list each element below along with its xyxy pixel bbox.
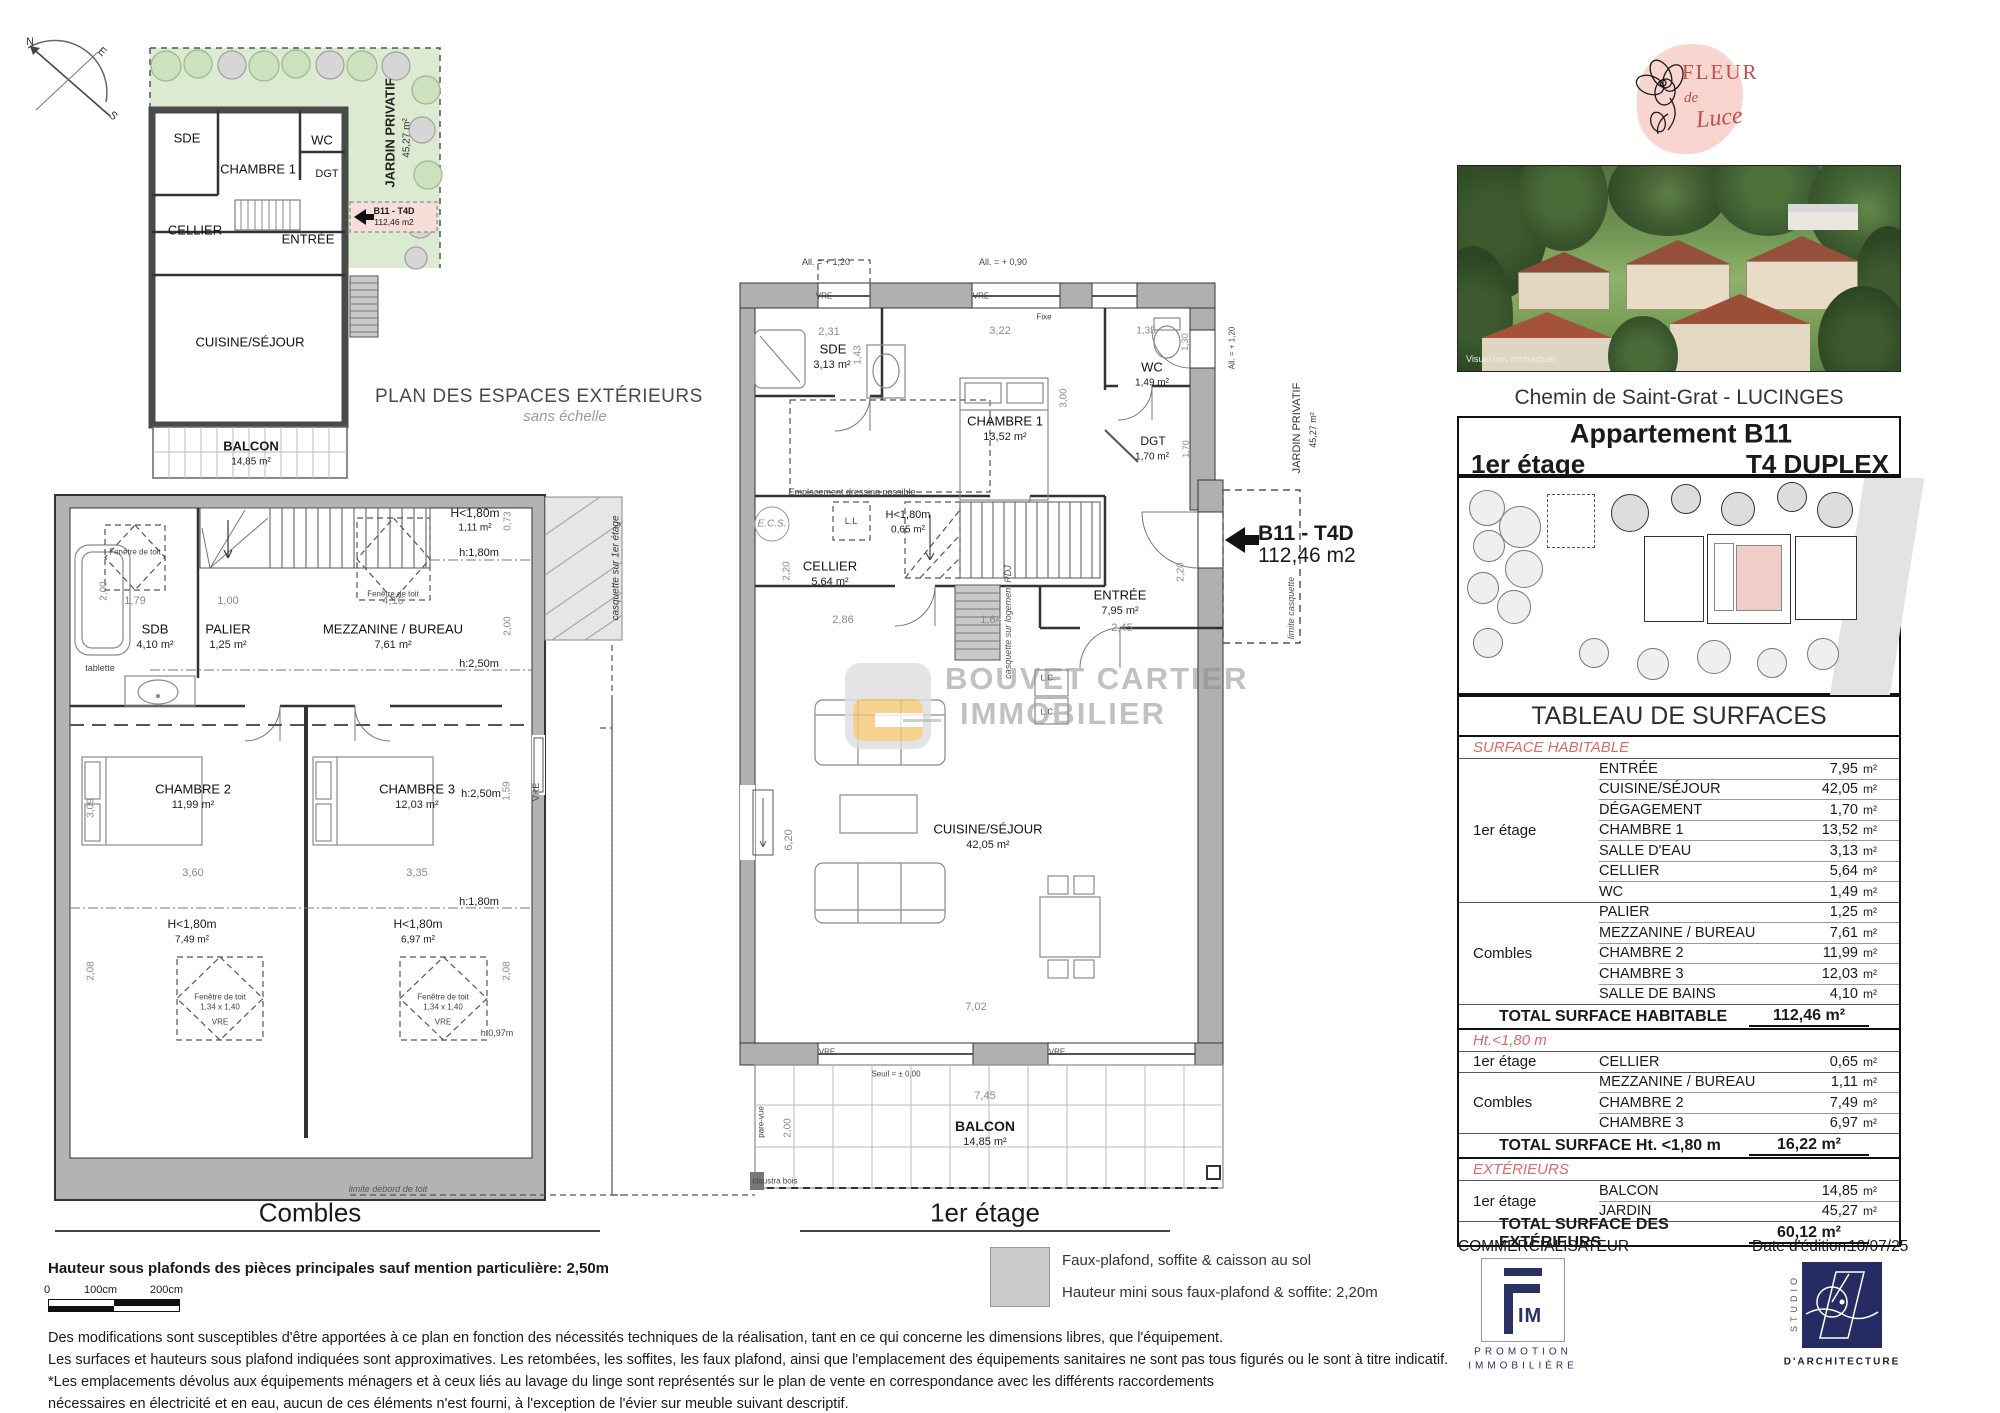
table-row: CHAMBRE 312,03m² [1599,964,1899,985]
row-unit: m² [1858,905,1899,919]
h180-area: 1,11 m² [458,523,491,534]
surfaces-table: TABLEAU DE SURFACES SURFACE HABITABLE 1e… [1457,695,1901,1247]
dim-label: 2,08 [502,961,513,980]
room-area: 1,70 m² [1135,452,1169,463]
row-unit: m² [1858,1184,1899,1198]
row-unit: m² [1858,1055,1899,1069]
room-area: 7,95 m² [1101,605,1138,617]
row-name: CELLIER [1599,863,1798,879]
scale-zero: 0 [44,1284,50,1296]
fim-logo: IM [1481,1258,1565,1342]
claustra-label: claustra bois [753,1177,798,1186]
legend-line1: Faux-plafond, soffite & caisson au sol [1062,1252,1311,1269]
vre-label: VRE [1049,1048,1065,1057]
room-label: WC [311,133,333,148]
exterior-plan-drawing [18,30,488,490]
row-unit: m² [1858,803,1899,817]
table-row: ENTRÉE7,95m² [1599,759,1899,780]
section-header: Ht.<1,80 m [1459,1030,1899,1052]
row-unit: m² [1858,844,1899,858]
allege-label: All. = + 1,20 [1228,327,1237,370]
dim-label: 2,20 [782,561,793,580]
room-label: ENTRÉE [282,232,335,247]
lc-label: L.C. [1041,674,1056,683]
room-label: CHAMBRE 2 [155,782,231,797]
table-row: SALLE D'EAU3,13m² [1599,841,1899,862]
dim-label: 3,22 [989,325,1010,337]
height-label: h:1,80m [459,547,499,559]
floor-label: 1er étage [1459,1052,1599,1072]
room-label: WC [1141,360,1163,375]
row-value: 7,95 [1798,761,1858,777]
row-unit: m² [1858,1096,1899,1110]
height-label: h:1,80m [459,896,499,908]
vre-label: VRE [531,783,541,802]
row-unit: m² [1858,864,1899,878]
balcon-area: 14,85 m² [231,457,270,468]
fenetre-label: Fenêtre de toit [194,993,246,1002]
h180-label: H<1,80m [886,509,931,521]
unit-tag-area: 112,46 m2 [1258,544,1356,568]
vre-label: VRE [212,1018,228,1027]
site-building-b11 [1707,534,1791,624]
dim-label: 2,00 [783,1118,794,1137]
row-value: 4,10 [1798,986,1858,1002]
photo-house [1788,204,1858,230]
studio-vertical-text: STUDIO [1789,1274,1799,1332]
room-label: CUISINE/SÉJOUR [933,822,1042,837]
room-label: SDB [142,622,169,637]
balcon-area: 14,85 m² [963,1136,1006,1148]
row-unit: m² [1858,1204,1899,1218]
dim-label: 3,35 [406,867,427,879]
row-name: ENTRÉE [1599,761,1798,777]
room-area: 13,52 m² [983,431,1026,443]
dim-label: 7,02 [965,1001,986,1013]
room-area: 1,25 m² [209,639,246,651]
row-name: WC [1599,884,1798,900]
room-label: ENTRÉE [1094,588,1147,603]
dim-label: 0,73 [503,511,514,530]
allege-label: All. = + 1,20 [802,257,850,267]
row-value: 45,27 [1798,1203,1858,1219]
balcon-label: BALCON [223,439,279,454]
dim-label: 2,86 [832,614,853,626]
scale-200: 200cm [150,1284,183,1296]
room-label: CHAMBRE 1 [220,162,296,177]
jardin-label: JARDIN PRIVATIF [383,78,398,187]
table-row: MEZZANINE / BUREAU1,11m² [1599,1073,1899,1094]
row-unit: m² [1858,885,1899,899]
row-unit: m² [1858,946,1899,960]
combles-title-rule [55,1230,600,1232]
row-name: MEZZANINE / BUREAU [1599,925,1798,941]
table-row: CELLIER0,65m² [1599,1052,1899,1072]
room-area: 11,99 m² [172,799,215,811]
row-value: 12,03 [1798,966,1858,982]
row-unit: m² [1858,1116,1899,1130]
total-value: 16,22 m² [1749,1136,1869,1156]
room-label: DGT [1140,434,1165,448]
combles-title: Combles [259,1198,362,1229]
fim-im-text: IM [1518,1305,1542,1328]
disclaimer-line: nécessaires en électricité et en eau, au… [48,1396,849,1412]
dim-label: 2,31 [818,326,839,338]
row-value: 1,25 [1798,904,1858,920]
table-row: MEZZANINE / BUREAU7,61m² [1599,923,1899,944]
parevue-label: pare-vue [757,1106,766,1138]
surface-group: Combles MEZZANINE / BUREAU1,11m² CHAMBRE… [1459,1073,1899,1135]
dim-label: 3,60 [182,867,203,879]
table-row: CHAMBRE 113,52m² [1599,821,1899,842]
studio-logo [1802,1262,1882,1348]
vre-label: VRE [819,1048,835,1057]
fenetre-label: Fenêtre de toit [417,993,469,1002]
room-label: CUISINE/SÉJOUR [195,335,304,350]
row-value: 3,13 [1798,843,1858,859]
h180-area: 0,65 m² [891,525,925,536]
row-value: 14,85 [1798,1183,1858,1199]
row-value: 11,99 [1798,945,1858,961]
etage-title-rule [800,1230,1170,1232]
room-area: 7,61 m² [374,639,411,651]
unit-tag-code: B11 - T4D [1258,522,1354,546]
dressing-label: Emplacement dressing possible [788,487,915,497]
table-row: CUISINE/SÉJOUR42,05m² [1599,780,1899,801]
h180-area: 7,49 m² [175,935,209,946]
height-note: Hauteur sous plafonds des pièces princip… [48,1260,609,1277]
photo-chalet [1518,252,1610,310]
surface-group: 1er étage ENTRÉE7,95m² CUISINE/SÉJOUR42,… [1459,759,1899,903]
h180-area: 6,97 m² [401,935,435,946]
row-name: CHAMBRE 2 [1599,1095,1798,1111]
h180-label: H<1,80m [450,506,499,520]
brand-line2: de [1684,90,1698,107]
table-row: SALLE DE BAINS4,10m² [1599,985,1899,1005]
dim-label: 1,59 [502,781,513,800]
site-building [1644,536,1704,622]
dim-label: 3,00 [1059,388,1070,407]
dim-label: 1,79 [124,595,145,607]
dim-label: 1,35 [1136,326,1155,337]
plan-sheet: N E S SDE CHAMBRE 1 WC DGT CELLIER ENTRÉ… [0,0,2000,1413]
table-row: CELLIER5,64m² [1599,862,1899,883]
room-label: MEZZANINE / BUREAU [323,622,463,637]
row-name: CELLIER [1599,1054,1798,1070]
table-title: TABLEAU DE SURFACES [1459,697,1899,737]
address: Chemin de Saint-Grat - LUCINGES [1514,386,1843,410]
room-label: DGT [315,168,338,180]
legend-swatch [990,1247,1050,1307]
floor-label: Combles [1459,903,1599,1005]
edition-date-label: Date d'édition: [1752,1238,1851,1256]
site-plan [1457,476,1901,695]
row-name: CHAMBRE 1 [1599,822,1798,838]
h180-label: H<1,80m [393,917,442,931]
fenetre-dim: 1,34 x 1,40 [423,1003,463,1012]
surface-group: 1er étage CELLIER0,65m² [1459,1052,1899,1073]
fenetre-label: Fenêtre de toit [109,548,161,557]
dim-label: 3,09 [86,798,97,817]
row-unit: m² [1858,762,1899,776]
commercialisateur-label: COMMERCIALISATEUR [1458,1238,1629,1256]
studio-caption: D'ARCHITECTURE [1784,1357,1901,1368]
unit-title: Appartement B11 [1570,419,1792,450]
dim-label: 1,30 [1180,333,1190,351]
row-name: MEZZANINE / BUREAU [1599,1074,1798,1090]
fim-caption1: PROMOTION [1474,1347,1572,1358]
unit-tag-area: 112,46 m2 [374,217,414,227]
dim-label: 1,00 [217,595,238,607]
dim-label: 1,70 [1181,440,1191,458]
dim-label: 7,45 [974,1090,995,1102]
limite-toit-label: limite débord de toit [349,1184,428,1194]
room-label: CHAMBRE 3 [379,782,455,797]
unit-info-box: Appartement B11 1er étage T4 DUPLEX [1457,416,1901,476]
disclaimer-line: *Les emplacements dévolus aux équipement… [48,1374,1214,1390]
scale-100: 100cm [84,1284,117,1296]
allege-label: All. = + 0,90 [979,257,1027,267]
edition-date-value: 10/07/25 [1848,1238,1908,1256]
watermark-rule [903,719,941,722]
room-label: CELLIER [803,559,857,574]
row-name: SALLE D'EAU [1599,843,1798,859]
row-value: 1,49 [1798,884,1858,900]
table-row: CHAMBRE 27,49m² [1599,1093,1899,1114]
row-name: BALCON [1599,1183,1798,1199]
jardin-label: JARDIN PRIVATIF [1291,383,1303,474]
surface-group: Combles PALIER1,25m² MEZZANINE / BUREAU7… [1459,903,1899,1006]
height-label: h:0,97m [481,1028,514,1038]
fim-caption2: IMMOBILIÈRE [1468,1361,1578,1372]
row-unit: m² [1858,926,1899,940]
seuil-label: Seuil = ± 0,00 [871,1070,920,1079]
brand-line3: Luce [1695,103,1744,135]
row-unit: m² [1858,967,1899,981]
room-label: SDE [174,131,201,146]
table-row: BALCON14,85m² [1599,1181,1899,1202]
floor-label: Combles [1459,1073,1599,1134]
disclaimer-line: Des modifications sont susceptibles d'êt… [48,1330,1223,1346]
row-unit: m² [1858,1075,1899,1089]
limite-casquette-label: limite casquette [1286,577,1296,640]
room-label: CHAMBRE 1 [967,414,1043,429]
development-photo: Visuel non contractuel [1457,165,1901,372]
row-value: 0,65 [1798,1054,1858,1070]
watermark-logo [845,663,931,749]
legend-line2: Hauteur mini sous faux-plafond & soffite… [1062,1284,1378,1301]
dim-label: 2,20 [1176,562,1187,581]
room-area: 1,49 m² [1135,378,1169,389]
room-area: 12,03 m² [395,799,438,811]
dim-label: 4,16 [382,595,403,607]
room-area: 4,10 m² [136,639,173,651]
row-value: 1,70 [1798,802,1858,818]
scale-bar [48,1299,180,1312]
section-header: EXTÉRIEURS [1459,1159,1899,1181]
tablette-label: tablette [85,663,115,673]
dim-label: 2,00 [503,616,514,635]
row-name: SALLE DE BAINS [1599,986,1798,1002]
photo-caption: Visuel non contractuel [1466,354,1554,364]
table-row: WC1,49m² [1599,882,1899,902]
casquette-rdj-label: casquette sur logement RDJ [1003,565,1013,679]
vre-label: VRE [435,1018,451,1027]
site-building [1795,536,1857,620]
row-value: 6,97 [1798,1115,1858,1131]
site-dashed-lot [1547,494,1595,548]
row-value: 13,52 [1798,822,1858,838]
row-name: CHAMBRE 3 [1599,966,1798,982]
dim-label: 1,43 [853,345,864,364]
table-row: DÉGAGEMENT1,70m² [1599,800,1899,821]
room-label: PALIER [205,622,250,637]
row-name: DÉGAGEMENT [1599,802,1798,818]
room-area: 42,05 m² [966,839,1009,851]
row-value: 7,49 [1798,1095,1858,1111]
ll-label: L.L [845,516,858,526]
floor-label: 1er étage [1459,759,1599,902]
total-row: TOTAL SURFACE HABITABLE 112,46 m² [1459,1005,1899,1030]
brand-line1: FLEUR [1682,60,1759,85]
dim-label: 2,08 [86,961,97,980]
combles-plan-drawing [40,480,640,1240]
row-unit: m² [1858,987,1899,1001]
total-value: 112,46 m² [1749,1007,1869,1027]
room-area: 5,64 m² [811,576,848,588]
dim-label: 2,45 [1111,622,1132,634]
dim-label: 1,64 [980,614,1001,626]
etage-title: 1er étage [930,1198,1040,1229]
table-row: CHAMBRE 36,97m² [1599,1114,1899,1134]
room-area: 3,13 m² [813,359,850,371]
total-row: TOTAL SURFACE Ht. <1,80 m 16,22 m² [1459,1134,1899,1159]
row-value: 5,64 [1798,863,1858,879]
row-unit: m² [1858,823,1899,837]
total-label: TOTAL SURFACE HABITABLE [1459,1008,1749,1026]
row-name: CHAMBRE 2 [1599,945,1798,961]
dim-label: 6,20 [783,829,795,850]
row-name: PALIER [1599,904,1798,920]
row-value: 7,61 [1798,925,1858,941]
table-row: PALIER1,25m² [1599,903,1899,924]
unit-tag-code: B11 - T4D [373,206,414,216]
disclaimer-line: Les surfaces et hauteurs sous plafond in… [48,1352,1448,1368]
row-unit: m² [1858,782,1899,796]
watermark-line2: IMMOBILIER [960,696,1166,732]
section-header: SURFACE HABITABLE [1459,737,1899,759]
jardin-area: 45,27 m² [1308,412,1318,448]
room-label: SDE [820,342,847,357]
total-label: TOTAL SURFACE Ht. <1,80 m [1459,1137,1749,1155]
fenetre-dim: 1,34 x 1,40 [200,1003,240,1012]
row-value: 42,05 [1798,781,1858,797]
lc-label: L.C. [1041,708,1056,717]
jardin-area: 45,27 m² [402,118,413,157]
height-label: h:2,50m [461,788,501,800]
watermark-line1: BOUVET CARTIER [945,661,1249,697]
row-name: CHAMBRE 3 [1599,1115,1798,1131]
ecs-label: E.C.S. [758,519,787,530]
photo-house-foreground [1670,294,1810,372]
row-value: 1,11 [1798,1074,1858,1090]
room-label: CELLIER [168,223,222,238]
h180-label: H<1,80m [167,917,216,931]
balcon-label: BALCON [955,1118,1015,1134]
fixe-label: Fixe [1036,313,1051,322]
height-label: h:2,50m [459,658,499,670]
table-row: CHAMBRE 211,99m² [1599,944,1899,965]
dim-label: 2,00 [99,581,110,600]
vre-label: VRE [816,292,832,301]
vre-label: VRE [973,292,989,301]
row-name: CUISINE/SÉJOUR [1599,781,1798,797]
